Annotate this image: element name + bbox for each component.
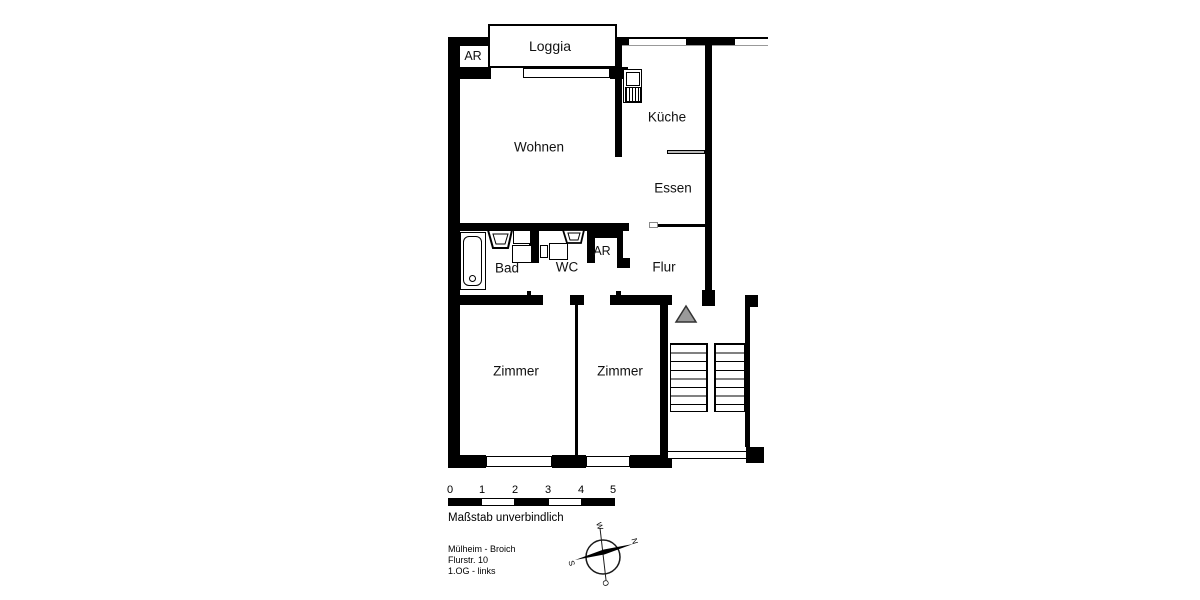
- scale-seg-1: [448, 498, 482, 506]
- room-label-essen: Essen: [654, 181, 692, 196]
- scale-tick-4: 4: [578, 484, 584, 496]
- bad-cabinet-top-symbol: [513, 230, 531, 244]
- toilet-cistern-symbol: [540, 245, 548, 258]
- scale-bar: [448, 498, 615, 506]
- kueche-counter: [667, 150, 705, 154]
- scale-tick-2: 2: [512, 484, 518, 496]
- room-label-kueche: Küche: [648, 110, 686, 125]
- toilet-bowl-symbol: [549, 243, 568, 260]
- stove-hatch: [625, 87, 641, 102]
- scale-tick-3: 3: [545, 484, 551, 496]
- address-line-floor: 1.OG - links: [448, 566, 516, 577]
- wall-zimmer-divider: [575, 305, 578, 457]
- wall-flur-right-foot: [702, 290, 715, 306]
- wall-stairwell-left: [660, 295, 668, 463]
- wall-bottom-b: [552, 455, 586, 468]
- wall-bottom-a: [448, 455, 486, 468]
- stove-symbol: [623, 69, 642, 103]
- room-label-ar-top: AR: [464, 49, 481, 63]
- scale-tick-1: 1: [479, 484, 485, 496]
- scale-seg-3: [515, 498, 548, 506]
- wall-stairwell-right-top: [745, 295, 758, 307]
- window-zimmer-left: [486, 456, 552, 467]
- wall-flur-right: [705, 45, 712, 290]
- essen-flur-door-cap: [649, 222, 658, 228]
- floorplan-canvas: Loggia AR Wohnen Küche Essen Flur Bad WC…: [0, 0, 1200, 600]
- room-label-flur: Flur: [652, 260, 675, 275]
- compass-label-south: S: [568, 559, 577, 566]
- scale-tick-0: 0: [447, 484, 453, 496]
- stairs-left-flight: [670, 343, 707, 412]
- wall-wohnen-kueche: [615, 45, 622, 157]
- compass-label-west: W: [594, 522, 605, 531]
- wall-under-ar-top: [448, 67, 491, 79]
- bad-sink-symbol: [487, 229, 514, 250]
- compass-label-east: O: [600, 579, 610, 587]
- wall-midband-bottom-b: [570, 295, 584, 305]
- stairs-right-flight: [715, 343, 745, 412]
- wc-sink-symbol: [562, 229, 586, 245]
- entrance-triangle-symbol: [674, 304, 698, 324]
- bathtub-drain: [469, 275, 476, 282]
- wall-inner-face-line: [617, 45, 768, 46]
- room-label-bad: Bad: [495, 261, 519, 276]
- address-block: Mülheim - Broich Flurstr. 10 1.OG - link…: [448, 544, 516, 577]
- room-label-zimmer-right: Zimmer: [597, 364, 643, 379]
- room-label-zimmer-left: Zimmer: [493, 364, 539, 379]
- wall-left: [448, 37, 460, 463]
- room-label-loggia: Loggia: [529, 38, 571, 54]
- wall-stairwell-right: [745, 307, 750, 447]
- address-line-city: Mülheim - Broich: [448, 544, 516, 555]
- scale-seg-2: [482, 498, 515, 506]
- window-zimmer-right: [586, 456, 630, 467]
- room-label-wohnen: Wohnen: [514, 140, 564, 155]
- wall-midband-bottom-a: [459, 295, 543, 305]
- bathtub-symbol: [460, 232, 486, 290]
- room-label-wc: WC: [556, 260, 579, 275]
- wall-ar-right: [617, 231, 623, 258]
- scale-tick-5: 5: [610, 484, 616, 496]
- wall-ar-right-foot: [617, 258, 630, 268]
- compass-rose: N W S O: [568, 522, 642, 590]
- scale-caption: Maßstab unverbindlich: [448, 512, 564, 524]
- stairs-divider: [707, 343, 715, 412]
- wall-stairwell-right-foot: [746, 447, 764, 463]
- window-stairwell: [668, 451, 746, 459]
- wall-wohnen-bottom: [448, 223, 629, 231]
- scale-seg-5: [582, 498, 615, 506]
- door-post-tick-right: [616, 291, 621, 295]
- wall-ar-top-strip: [595, 231, 617, 238]
- address-line-street: Flurstr. 10: [448, 555, 516, 566]
- scale-seg-4: [549, 498, 582, 506]
- room-label-ar-mid: AR: [593, 244, 610, 258]
- compass-needle: [575, 544, 633, 560]
- stove-top-plate: [626, 72, 640, 86]
- compass-label-north: N: [629, 537, 639, 545]
- window-loggia: [523, 68, 610, 78]
- door-post-tick-left: [527, 291, 531, 295]
